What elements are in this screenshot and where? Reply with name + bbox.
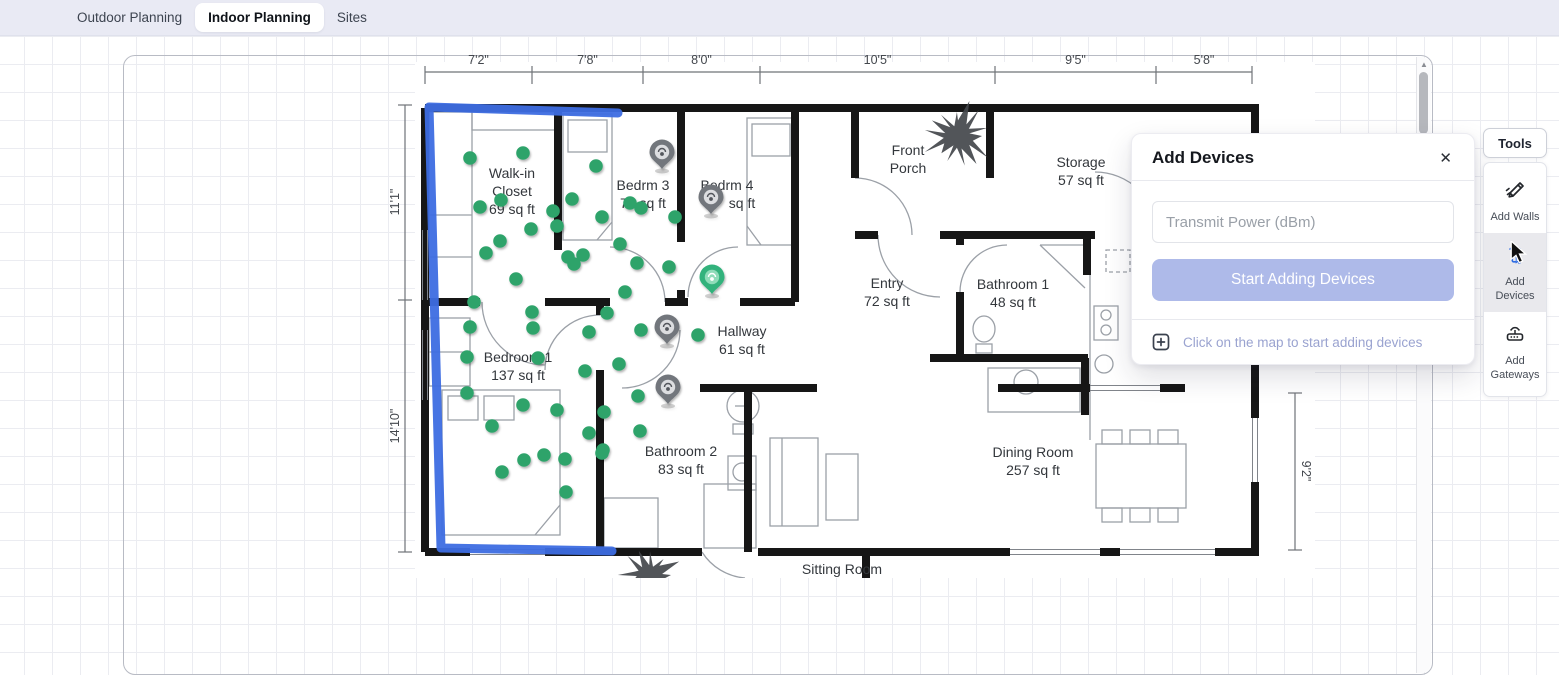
room-label-hallway: 61 sq ft <box>719 341 765 357</box>
device-dot <box>467 295 481 309</box>
device-dot <box>618 285 632 299</box>
device-hand-icon <box>1503 242 1527 271</box>
device-dot <box>517 453 531 467</box>
device-dot <box>613 237 627 251</box>
dialog-hint-text: Click on the map to start adding devices <box>1183 335 1422 350</box>
device-dot <box>546 204 560 218</box>
room-label-dining-room: Dining Room <box>993 444 1074 460</box>
device-dot <box>463 151 477 165</box>
device-dot <box>691 328 705 342</box>
room-label-bedrm-3: Bedrm 3 <box>617 177 670 193</box>
device-dot <box>567 257 581 271</box>
router-icon <box>1503 321 1527 350</box>
device-dot <box>494 193 508 207</box>
device-dot <box>460 350 474 364</box>
svg-text:5'8": 5'8" <box>1194 53 1215 67</box>
tool-add-gateways[interactable]: Add Gateways <box>1484 312 1546 391</box>
device-dot <box>525 305 539 319</box>
device-dot <box>531 351 545 365</box>
device-dot <box>589 159 603 173</box>
svg-text:9'2": 9'2" <box>1299 461 1313 482</box>
device-dot <box>662 260 676 274</box>
room-label-dining-room: 257 sq ft <box>1006 462 1060 478</box>
tool-label: Add Gateways <box>1486 354 1544 382</box>
tab-sites[interactable]: Sites <box>324 3 380 32</box>
room-label-storage: Storage <box>1056 154 1105 170</box>
device-dot <box>516 398 530 412</box>
tools-title: Tools <box>1483 128 1547 158</box>
room-label-entry: 72 sq ft <box>864 293 910 309</box>
device-dot <box>463 320 477 334</box>
room-label-entry: Entry <box>871 275 904 291</box>
device-dot <box>559 485 573 499</box>
dialog-title: Add Devices <box>1152 148 1254 168</box>
device-dot <box>550 403 564 417</box>
tools-panel: Tools Add Walls Ad <box>1483 128 1547 397</box>
room-label-walk-in-closet: Walk-in <box>489 165 535 181</box>
device-dot <box>524 222 538 236</box>
device-dot <box>582 426 596 440</box>
room-label-hallway: Hallway <box>717 323 766 339</box>
device-dot <box>595 446 609 460</box>
top-tab-bar: Outdoor Planning Indoor Planning Sites <box>0 0 1559 36</box>
room-label-front-porch: Porch <box>890 160 927 176</box>
device-dot <box>634 201 648 215</box>
svg-text:7'2": 7'2" <box>468 53 489 67</box>
room-label-bathroom-1: Bathroom 1 <box>977 276 1050 292</box>
device-dot <box>595 210 609 224</box>
tab-indoor-planning[interactable]: Indoor Planning <box>195 3 324 32</box>
plus-square-icon <box>1152 333 1170 351</box>
device-dot <box>550 219 564 233</box>
device-dot <box>473 200 487 214</box>
device-dot <box>633 424 647 438</box>
device-dot <box>634 323 648 337</box>
svg-text:10'5": 10'5" <box>864 53 892 67</box>
transmit-power-input[interactable] <box>1152 201 1454 243</box>
device-dot <box>582 325 596 339</box>
svg-text:11'1": 11'1" <box>388 189 402 216</box>
tool-label: Add Devices <box>1486 275 1544 303</box>
device-dot <box>565 192 579 206</box>
device-dot <box>558 452 572 466</box>
svg-text:7'8": 7'8" <box>577 53 598 67</box>
room-label-bathroom-1: 48 sq ft <box>990 294 1036 310</box>
tool-add-walls[interactable]: Add Walls <box>1484 168 1546 233</box>
room-label-bathroom-2: 83 sq ft <box>658 461 704 477</box>
add-devices-dialog: Add Devices ✕ Start Adding Devices Click… <box>1131 133 1475 365</box>
device-dot <box>668 210 682 224</box>
device-dot <box>600 306 614 320</box>
device-dot <box>460 386 474 400</box>
wall-pencil-icon <box>1503 177 1527 206</box>
svg-text:8'0": 8'0" <box>691 53 712 67</box>
device-dot <box>597 405 611 419</box>
device-dot <box>495 465 509 479</box>
device-dot <box>485 419 499 433</box>
device-dot <box>631 389 645 403</box>
tool-add-devices[interactable]: Add Devices <box>1484 233 1546 312</box>
svg-text:14'10": 14'10" <box>388 409 402 444</box>
device-dot <box>516 146 530 160</box>
tab-outdoor-planning[interactable]: Outdoor Planning <box>64 3 195 32</box>
room-label-storage: 57 sq ft <box>1058 172 1104 188</box>
device-dot <box>526 321 540 335</box>
device-dot <box>612 357 626 371</box>
start-adding-devices-button[interactable]: Start Adding Devices <box>1152 259 1454 301</box>
tool-label: Add Walls <box>1486 210 1544 224</box>
room-label-sitting-room: Sitting Room <box>802 561 882 577</box>
device-dot <box>493 234 507 248</box>
room-label-bathroom-2: Bathroom 2 <box>645 443 718 459</box>
device-dot <box>509 272 523 286</box>
device-dot <box>479 246 493 260</box>
device-dot <box>537 448 551 462</box>
room-label-bedrm-4-area: sq ft <box>729 195 756 211</box>
room-label-front-porch: Front <box>892 142 925 158</box>
device-dot <box>630 256 644 270</box>
close-icon[interactable]: ✕ <box>1437 149 1454 168</box>
device-dot <box>578 364 592 378</box>
room-label-bedroom-1: 137 sq ft <box>491 367 545 383</box>
svg-text:9'5": 9'5" <box>1065 53 1086 67</box>
